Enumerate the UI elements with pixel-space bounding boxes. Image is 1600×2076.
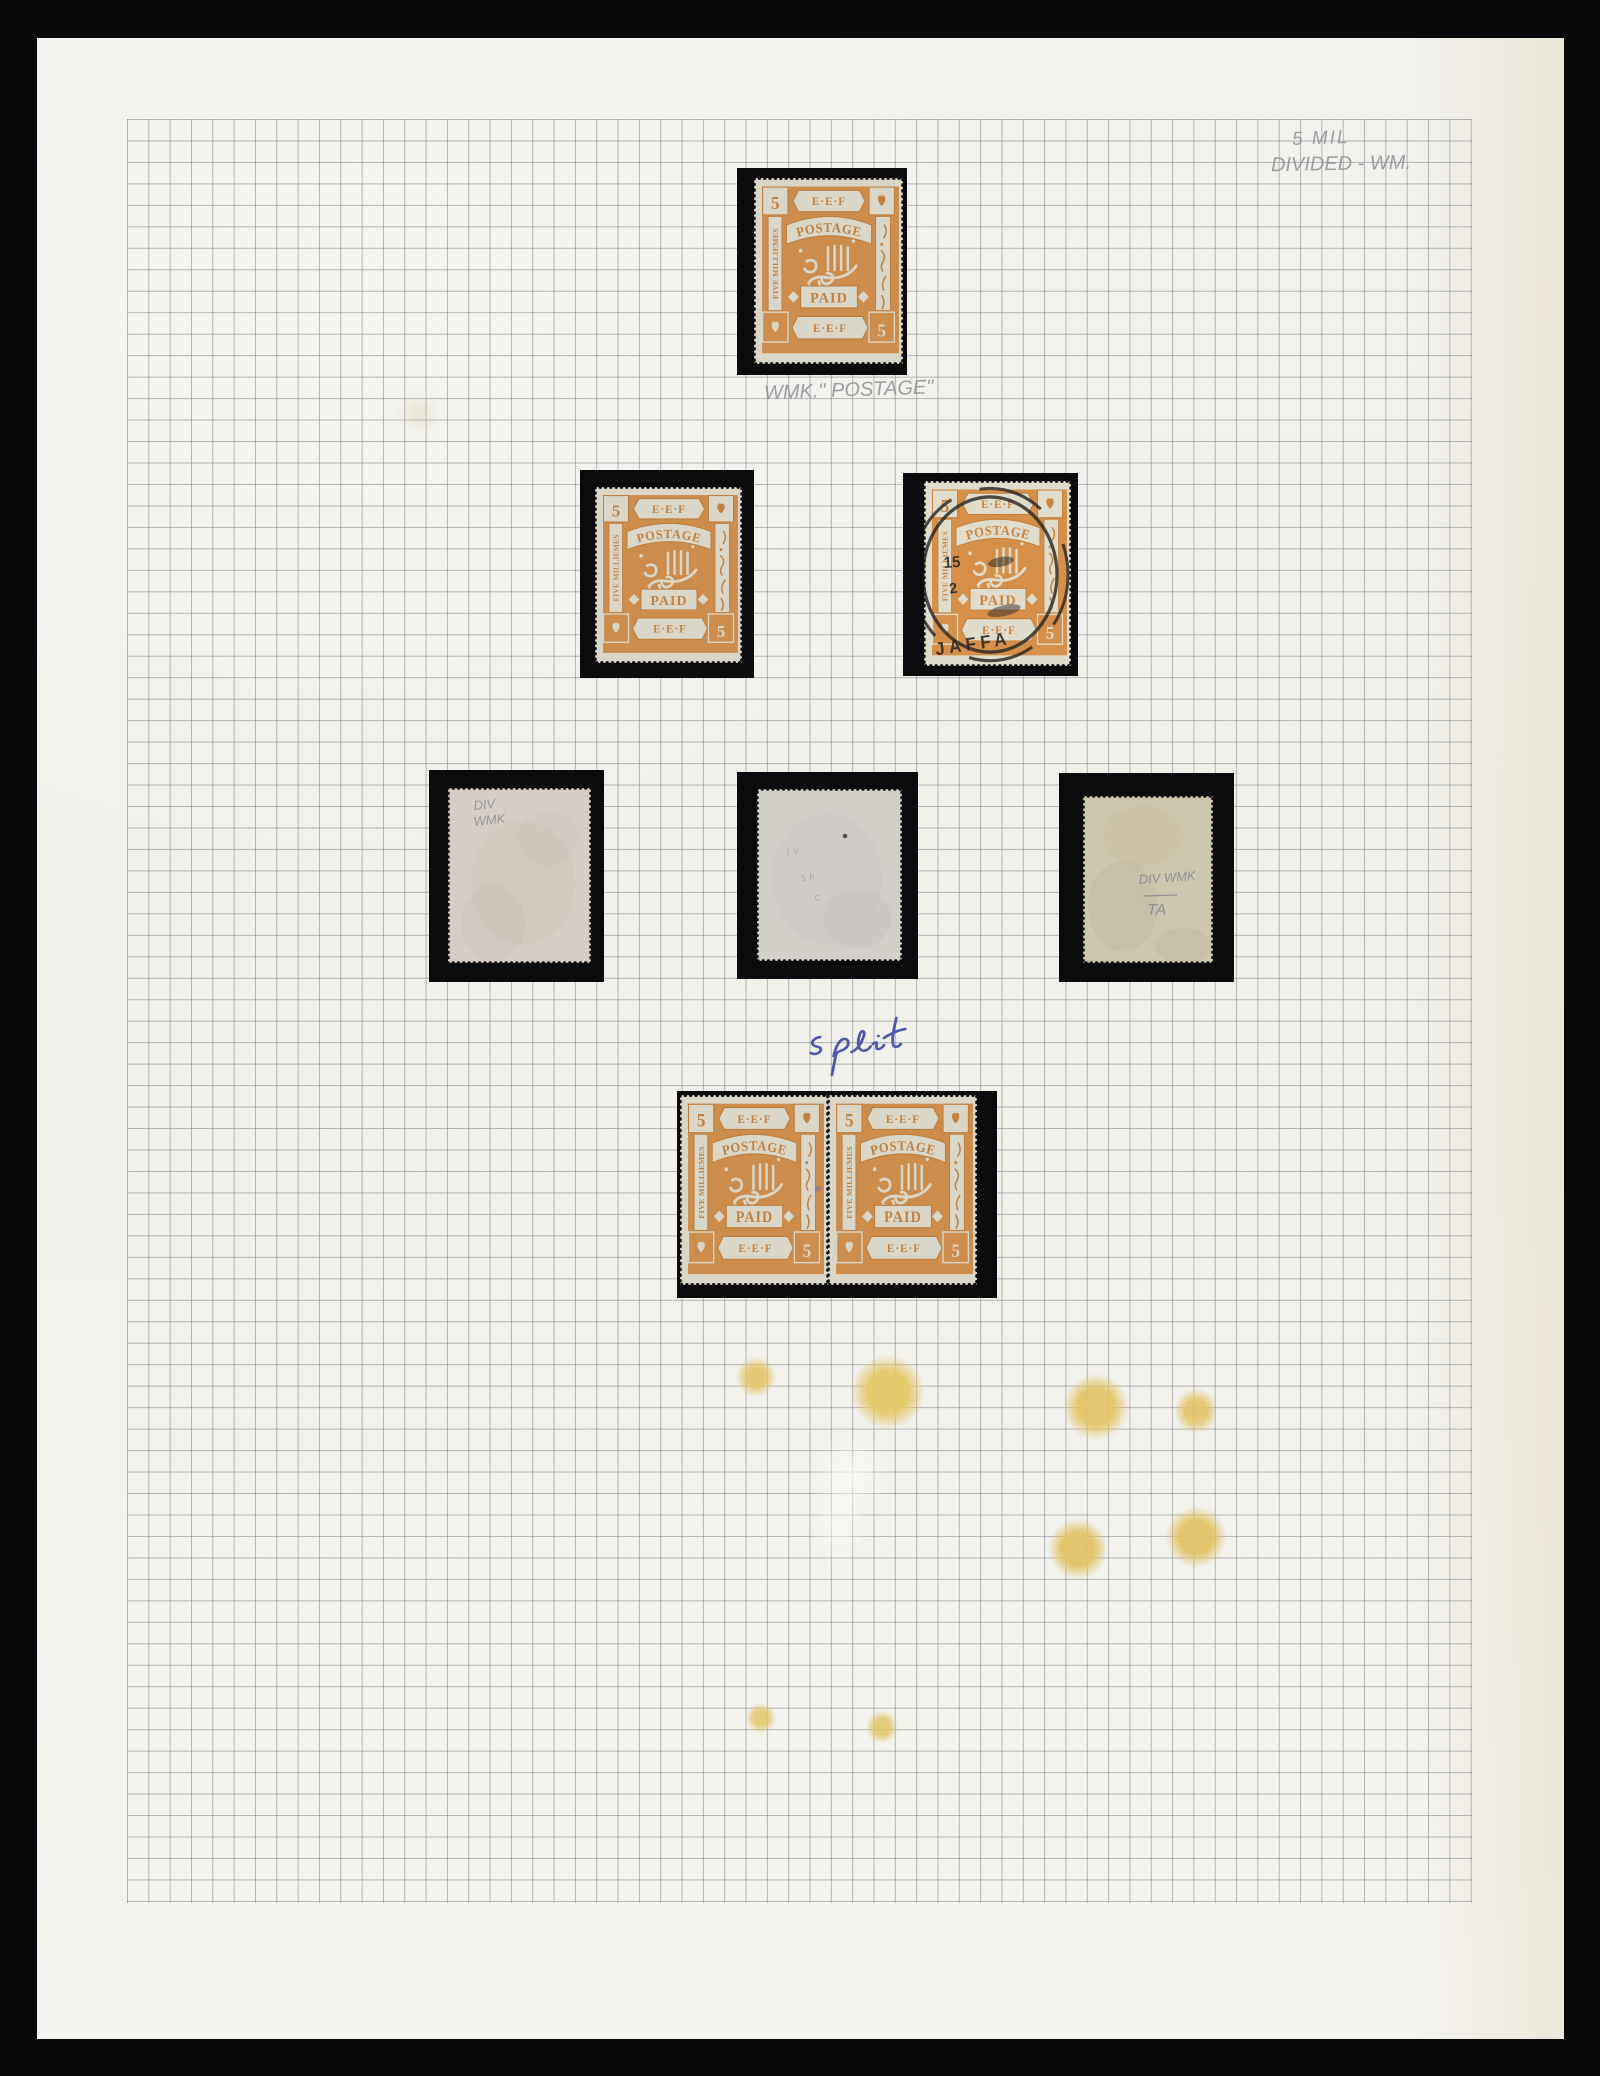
svg-text:s k: s k xyxy=(800,871,816,884)
svg-text:15: 15 xyxy=(943,554,961,573)
svg-text:( v.: ( v. xyxy=(786,844,802,858)
svg-text:TA: TA xyxy=(1147,902,1166,919)
svg-text:DIV: DIV xyxy=(473,796,497,813)
